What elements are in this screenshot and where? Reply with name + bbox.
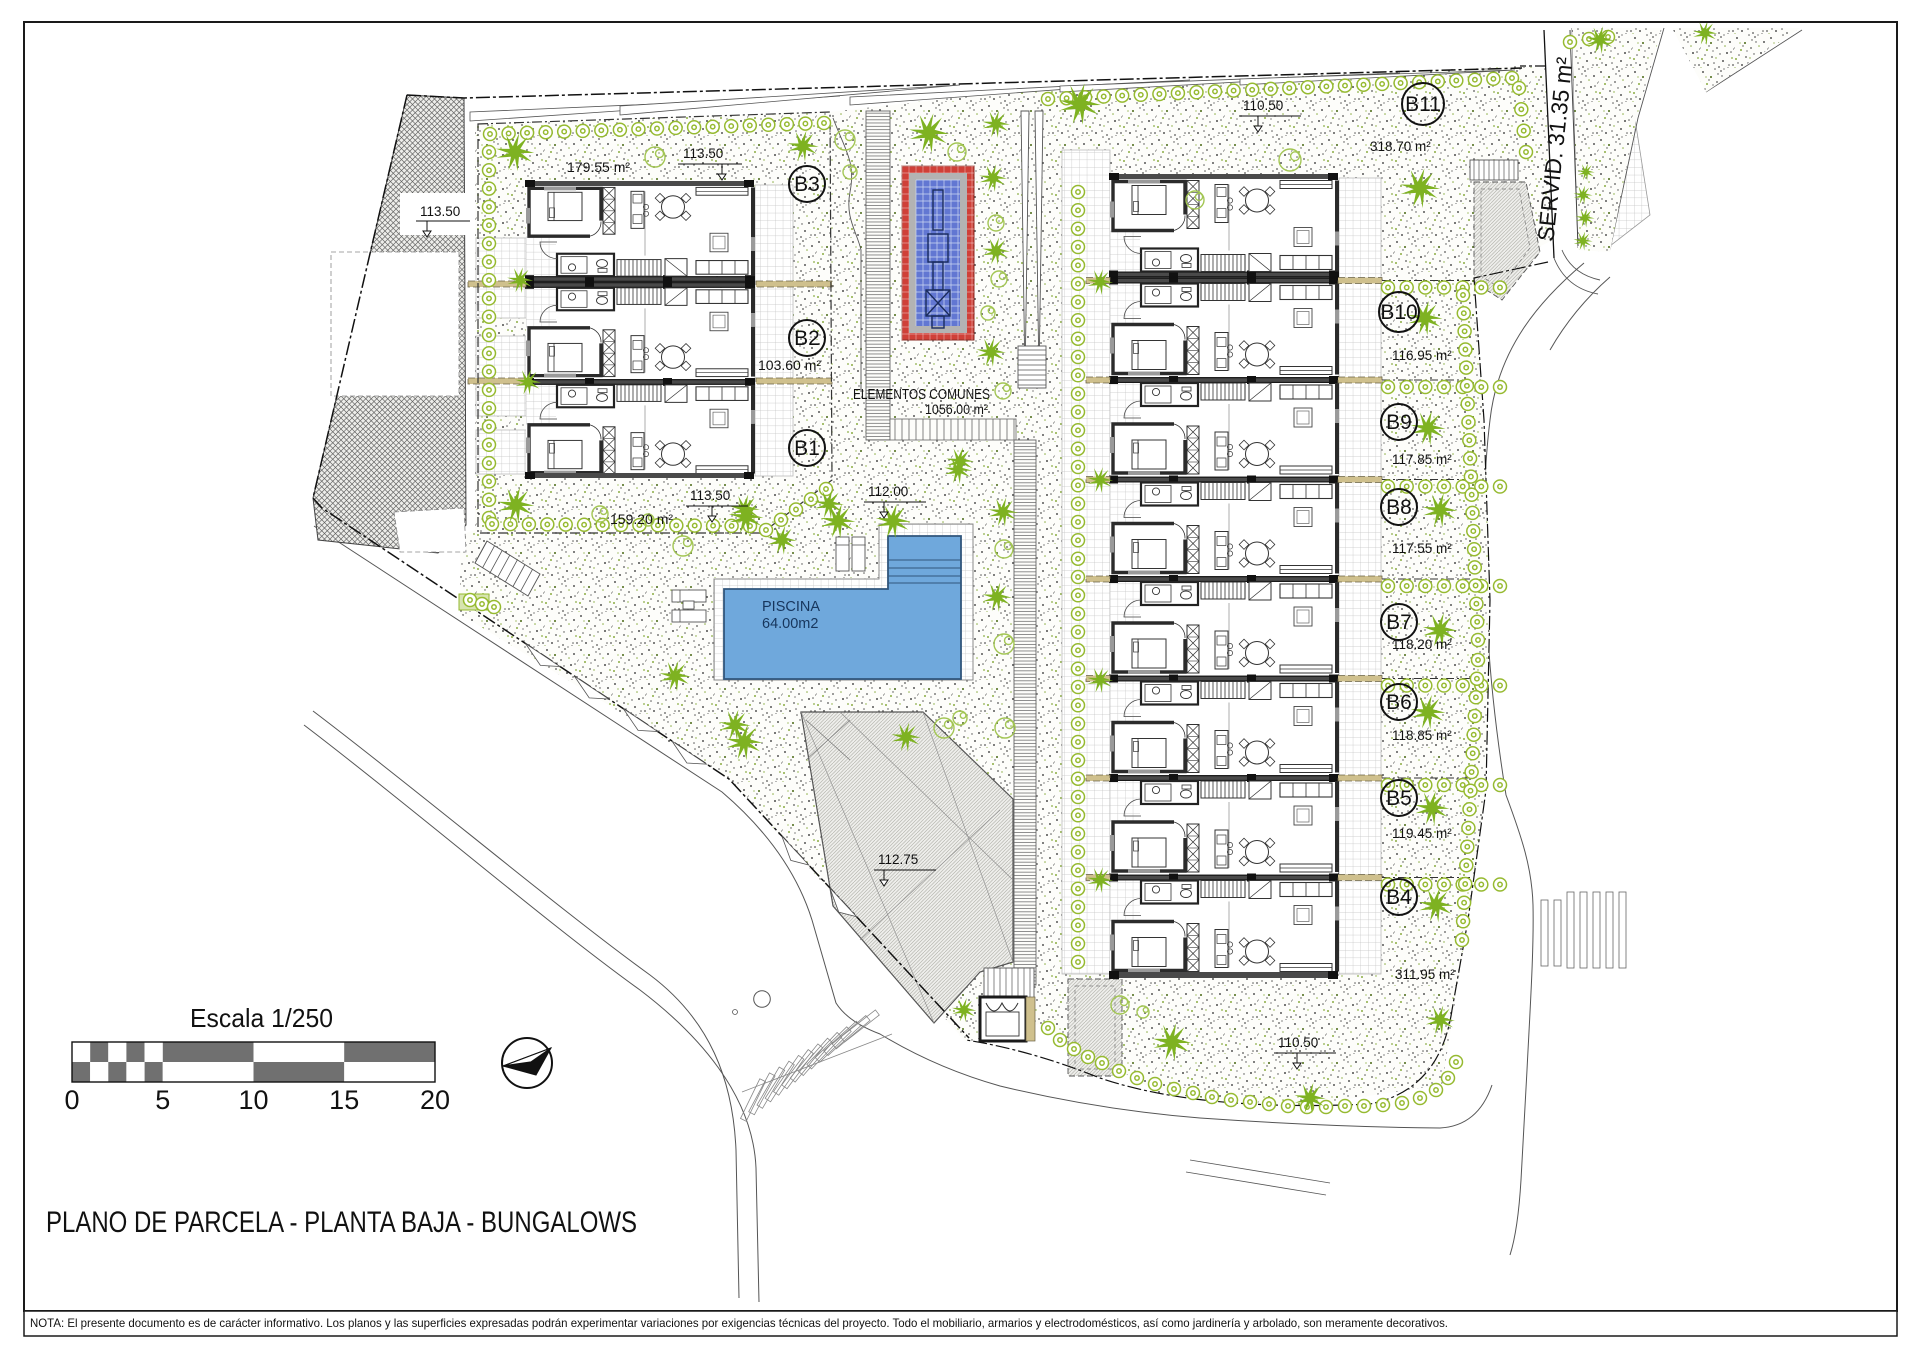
svg-text:116.95 m²: 116.95 m² [1392,348,1452,363]
svg-text:113.50: 113.50 [690,488,730,503]
svg-text:B11: B11 [1405,93,1441,116]
svg-text:112.75: 112.75 [878,852,918,867]
svg-text:B7: B7 [1386,611,1412,634]
svg-text:PISCINA: PISCINA [762,599,820,615]
svg-text:B9: B9 [1386,411,1412,434]
svg-text:B4: B4 [1386,886,1412,909]
svg-text:Escala 1/250: Escala 1/250 [190,1003,333,1033]
svg-text:B2: B2 [794,327,820,350]
svg-text:179.55 m²: 179.55 m² [567,159,630,175]
svg-text:64.00m2: 64.00m2 [762,616,818,632]
svg-text:110.50: 110.50 [1243,98,1283,113]
svg-text:B10: B10 [1380,301,1417,324]
svg-text:15: 15 [329,1085,359,1115]
svg-text:159.20 m²: 159.20 m² [610,511,673,527]
svg-text:B5: B5 [1386,787,1412,810]
svg-text:B1: B1 [794,437,820,460]
svg-text:0: 0 [64,1085,79,1115]
svg-text:311.95 m²: 311.95 m² [1395,967,1455,982]
svg-text:113.50: 113.50 [420,204,460,219]
svg-text:20: 20 [420,1085,450,1115]
svg-text:110.50: 110.50 [1278,1035,1318,1050]
svg-text:117.55 m²: 117.55 m² [1392,541,1452,556]
svg-text:103.60 m²: 103.60 m² [758,357,821,373]
svg-text:112.00: 112.00 [868,484,908,499]
svg-text:10: 10 [238,1085,268,1115]
svg-text:119.45 m²: 119.45 m² [1392,826,1452,841]
svg-text:PLANO DE PARCELA - PLANTA BAJA: PLANO DE PARCELA - PLANTA BAJA - BUNGALO… [46,1206,637,1239]
svg-text:118.85 m²: 118.85 m² [1392,728,1452,743]
svg-text:113.50: 113.50 [683,146,723,161]
svg-text:B8: B8 [1386,496,1412,519]
svg-text:318.70 m²: 318.70 m² [1370,139,1431,154]
svg-text:NOTA: El presente documento es: NOTA: El presente documento es de caráct… [30,1316,1448,1330]
svg-text:117.85 m²: 117.85 m² [1392,452,1452,467]
svg-text:B3: B3 [794,173,820,196]
svg-text:5: 5 [155,1085,170,1115]
svg-text:B6: B6 [1386,691,1412,714]
svg-text:1056.00 m²: 1056.00 m² [925,401,988,417]
